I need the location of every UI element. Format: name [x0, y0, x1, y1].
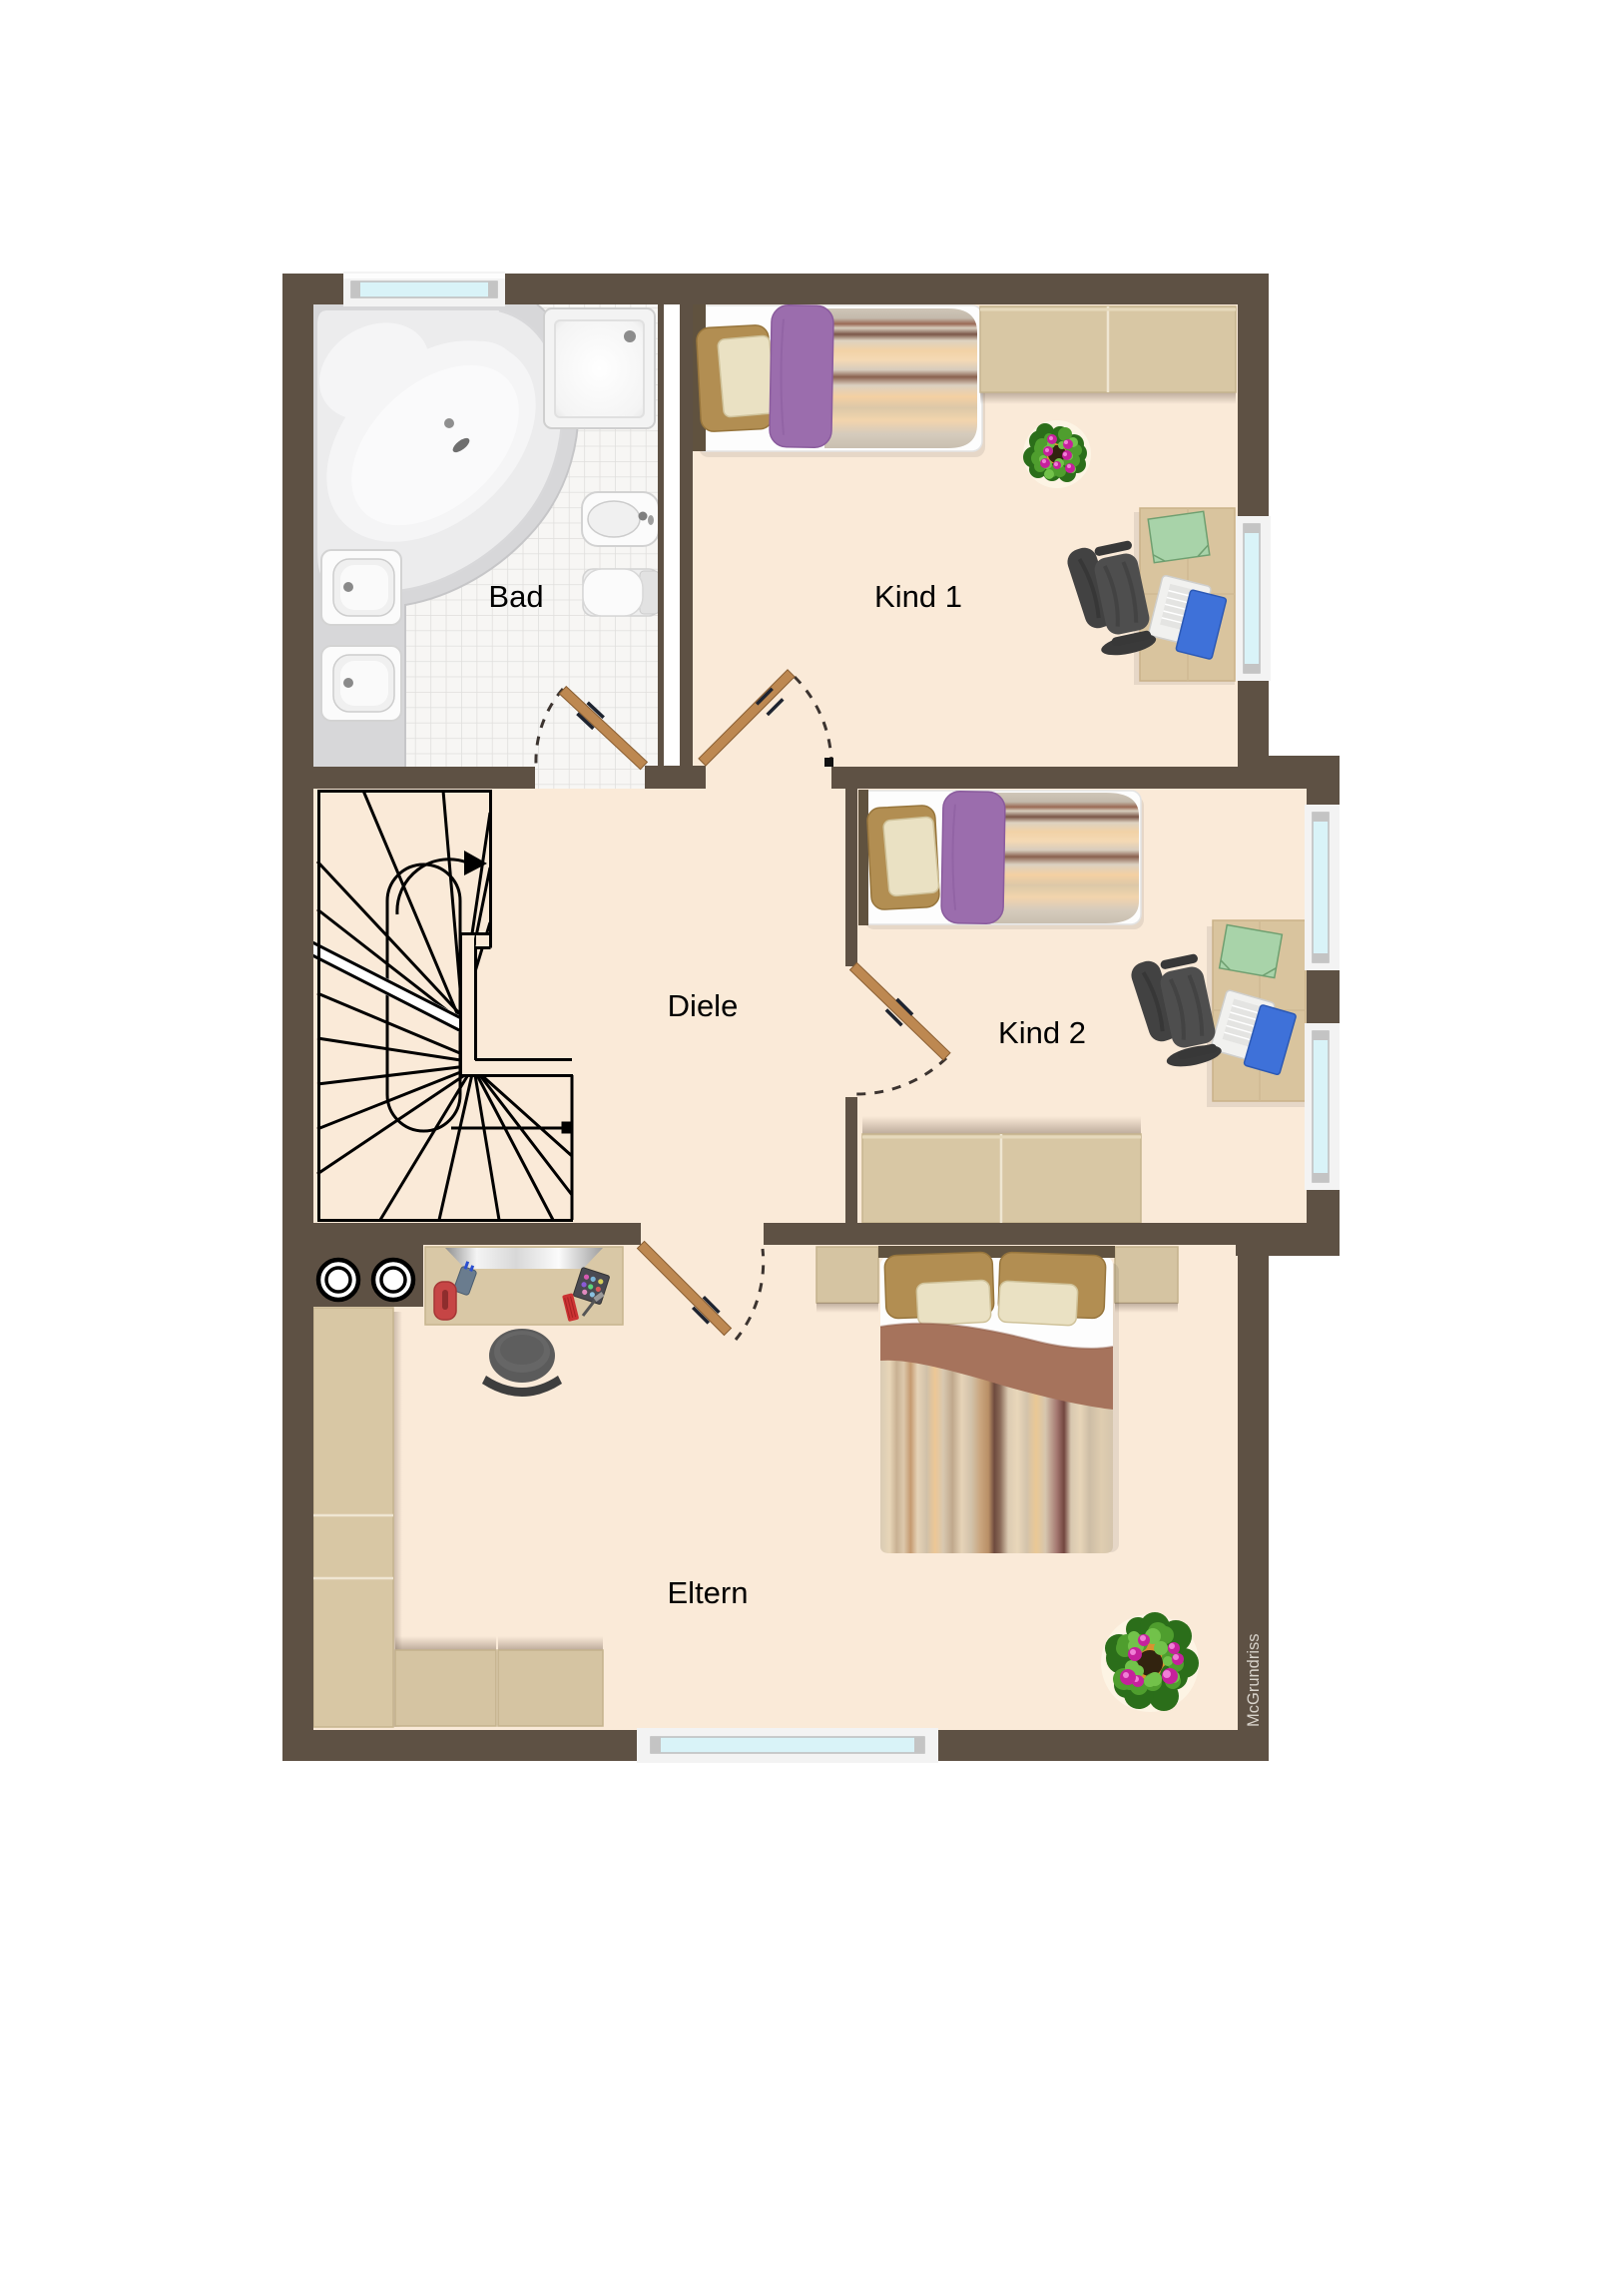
- svg-text:Kind 1: Kind 1: [874, 579, 962, 614]
- svg-text:Bad: Bad: [488, 579, 543, 614]
- svg-text:McGrundriss: McGrundriss: [1245, 1633, 1263, 1727]
- svg-text:Diele: Diele: [668, 988, 739, 1023]
- svg-text:Eltern: Eltern: [668, 1575, 749, 1610]
- svg-text:Kind 2: Kind 2: [998, 1015, 1086, 1050]
